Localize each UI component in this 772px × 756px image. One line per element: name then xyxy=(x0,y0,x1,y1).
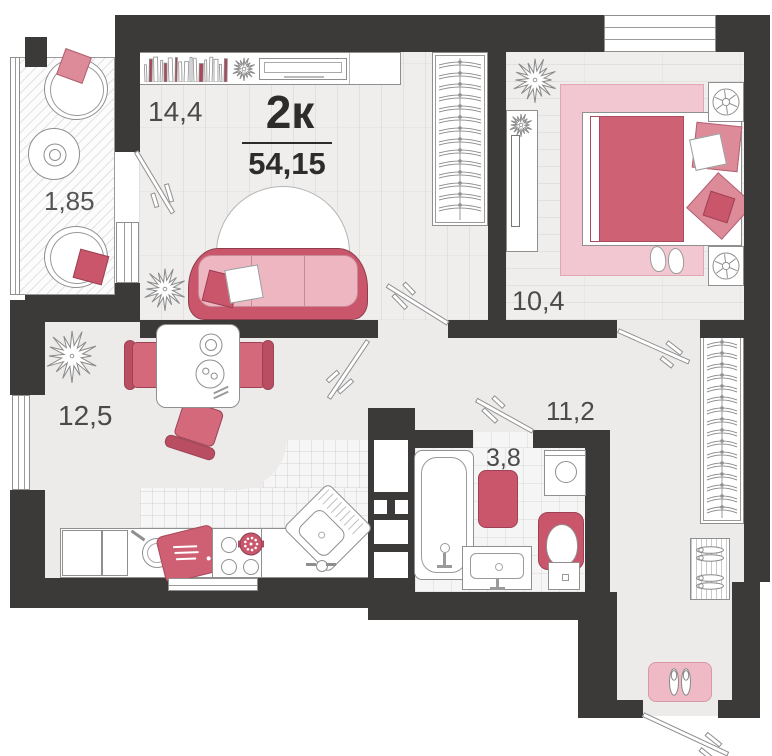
washing-machine xyxy=(544,450,586,496)
tv-icon xyxy=(511,135,520,227)
room-area-label-kitchen: 12,5 xyxy=(58,400,113,432)
duct-shaft xyxy=(368,408,415,604)
bed-blanket xyxy=(590,116,684,242)
bath-mat xyxy=(478,470,518,528)
wall xyxy=(718,700,746,718)
entry-threshold xyxy=(643,700,718,716)
balcony-living-window xyxy=(116,222,139,283)
kitchen-window xyxy=(12,395,30,490)
hanger-wardrobe xyxy=(700,332,744,524)
shoes-icon xyxy=(694,573,726,591)
room-area-label-living: 14,4 xyxy=(148,96,203,128)
wall xyxy=(700,320,744,338)
stove xyxy=(212,528,262,578)
duct-vent xyxy=(374,520,408,544)
wall xyxy=(744,15,770,582)
duct-vent xyxy=(374,440,408,492)
burner-icon xyxy=(221,537,237,553)
floor-plan: 2к 54,15 14,4 1,85 10,4 12,5 11,2 3,8 xyxy=(0,0,772,756)
wall xyxy=(585,430,610,612)
tv-icon xyxy=(259,58,347,80)
dining-table xyxy=(156,324,240,408)
shoes-icon xyxy=(665,667,695,697)
nightstand xyxy=(708,246,744,286)
wall xyxy=(25,37,47,67)
fan-decor-icon xyxy=(711,249,741,283)
plant-icon xyxy=(231,55,257,83)
plate-icon xyxy=(199,333,223,357)
sofa xyxy=(188,248,368,320)
total-area-label: 54,15 xyxy=(230,146,344,182)
duct-vent xyxy=(395,500,408,514)
plant-icon xyxy=(44,326,100,386)
hangers-icon xyxy=(435,55,485,223)
wall xyxy=(578,700,643,718)
room-area-label-bedroom: 10,4 xyxy=(512,286,565,317)
books-icon xyxy=(143,56,229,82)
kitchen-cabinet xyxy=(102,530,128,576)
bed-sheet-fold xyxy=(590,116,600,242)
faucet-icon xyxy=(316,560,328,572)
drain-icon xyxy=(440,543,450,553)
doormat xyxy=(648,662,712,702)
wall xyxy=(10,300,45,395)
wall xyxy=(448,320,617,338)
room-area-label-balcony: 1,85 xyxy=(44,186,95,217)
shelf-unit xyxy=(139,52,401,85)
bedroom-window xyxy=(604,15,716,52)
apartment-type-label: 2к xyxy=(240,85,340,139)
wall xyxy=(488,15,506,338)
entry-door xyxy=(642,712,729,756)
faucet-icon xyxy=(306,563,316,566)
shoe-bench xyxy=(690,538,730,600)
sofa-pillow xyxy=(224,264,263,303)
balcony-glazing xyxy=(10,57,20,295)
shoes-icon xyxy=(694,545,726,563)
faucet-icon xyxy=(490,587,505,590)
oven-window xyxy=(168,578,258,591)
toilet xyxy=(546,524,578,566)
duct-vent xyxy=(374,552,408,578)
plant-icon xyxy=(510,56,560,104)
nightstand xyxy=(708,82,744,122)
bath-sink xyxy=(462,546,532,590)
wall xyxy=(115,40,140,152)
wall xyxy=(115,283,140,322)
burner-icon xyxy=(221,559,237,575)
plant-icon xyxy=(142,264,188,314)
wall xyxy=(368,592,585,620)
wall xyxy=(533,430,588,448)
kitchen-cabinet xyxy=(62,530,102,576)
room-area-label-hallway: 11,2 xyxy=(546,396,595,427)
faucet-icon xyxy=(326,563,336,566)
room-area-label-bathroom: 3,8 xyxy=(486,444,521,473)
wall xyxy=(732,582,760,718)
plant-icon xyxy=(508,112,534,138)
toilet-tank xyxy=(548,562,580,590)
fan-decor-icon xyxy=(711,85,741,119)
pot-icon xyxy=(238,531,264,557)
wall xyxy=(415,430,473,448)
plate-icon xyxy=(195,359,225,389)
burner-icon xyxy=(243,559,259,575)
wall xyxy=(115,15,604,52)
hanger-wardrobe xyxy=(432,52,488,226)
title-divider xyxy=(242,142,332,144)
balcony-table xyxy=(28,128,80,180)
duct-vent xyxy=(374,500,387,514)
dining-chair xyxy=(262,340,274,390)
faucet-icon xyxy=(437,565,452,568)
hangers-icon xyxy=(703,335,741,521)
bed-pillow xyxy=(689,133,727,171)
